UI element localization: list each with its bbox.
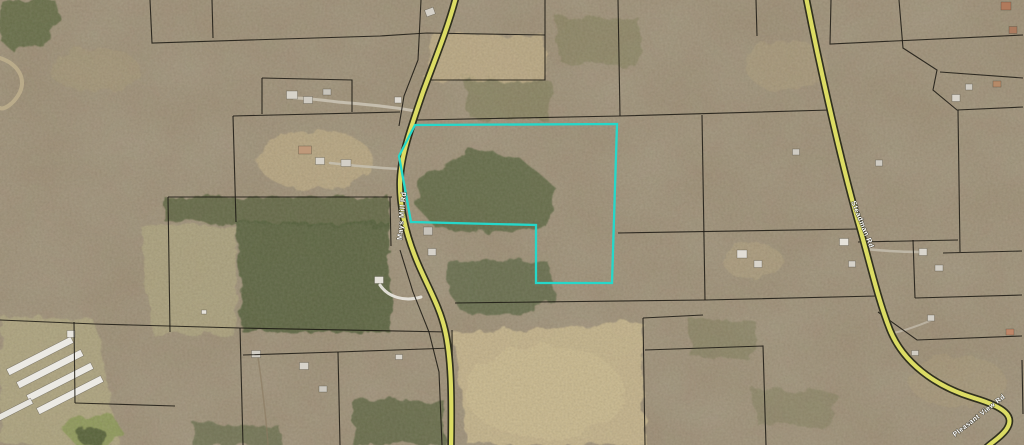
building (966, 84, 973, 90)
building (928, 315, 935, 321)
building (1001, 2, 1011, 10)
building (375, 277, 384, 284)
building (912, 351, 919, 356)
building (737, 250, 747, 258)
building (754, 261, 762, 268)
building (287, 91, 298, 99)
building (396, 355, 403, 360)
building (876, 160, 883, 166)
building (323, 89, 331, 95)
building (316, 158, 325, 165)
building (952, 95, 960, 102)
map-viewport[interactable]: Mays Mill RdSteadman RdPleasant View Rd (0, 0, 1024, 445)
building (341, 160, 351, 167)
building (202, 310, 207, 314)
building (919, 249, 927, 256)
aerial-map[interactable]: Mays Mill RdSteadman RdPleasant View Rd (0, 0, 1024, 445)
building (935, 265, 943, 271)
building (840, 239, 849, 246)
building (395, 97, 402, 103)
building (299, 146, 312, 154)
building (304, 97, 313, 104)
building (1006, 329, 1014, 335)
building (849, 261, 856, 267)
building (1009, 27, 1017, 34)
building (319, 386, 327, 392)
building (424, 227, 433, 235)
building (793, 149, 800, 155)
canopy-highlights (0, 0, 1024, 445)
building (300, 363, 309, 370)
building (993, 81, 1001, 87)
building (428, 249, 436, 256)
